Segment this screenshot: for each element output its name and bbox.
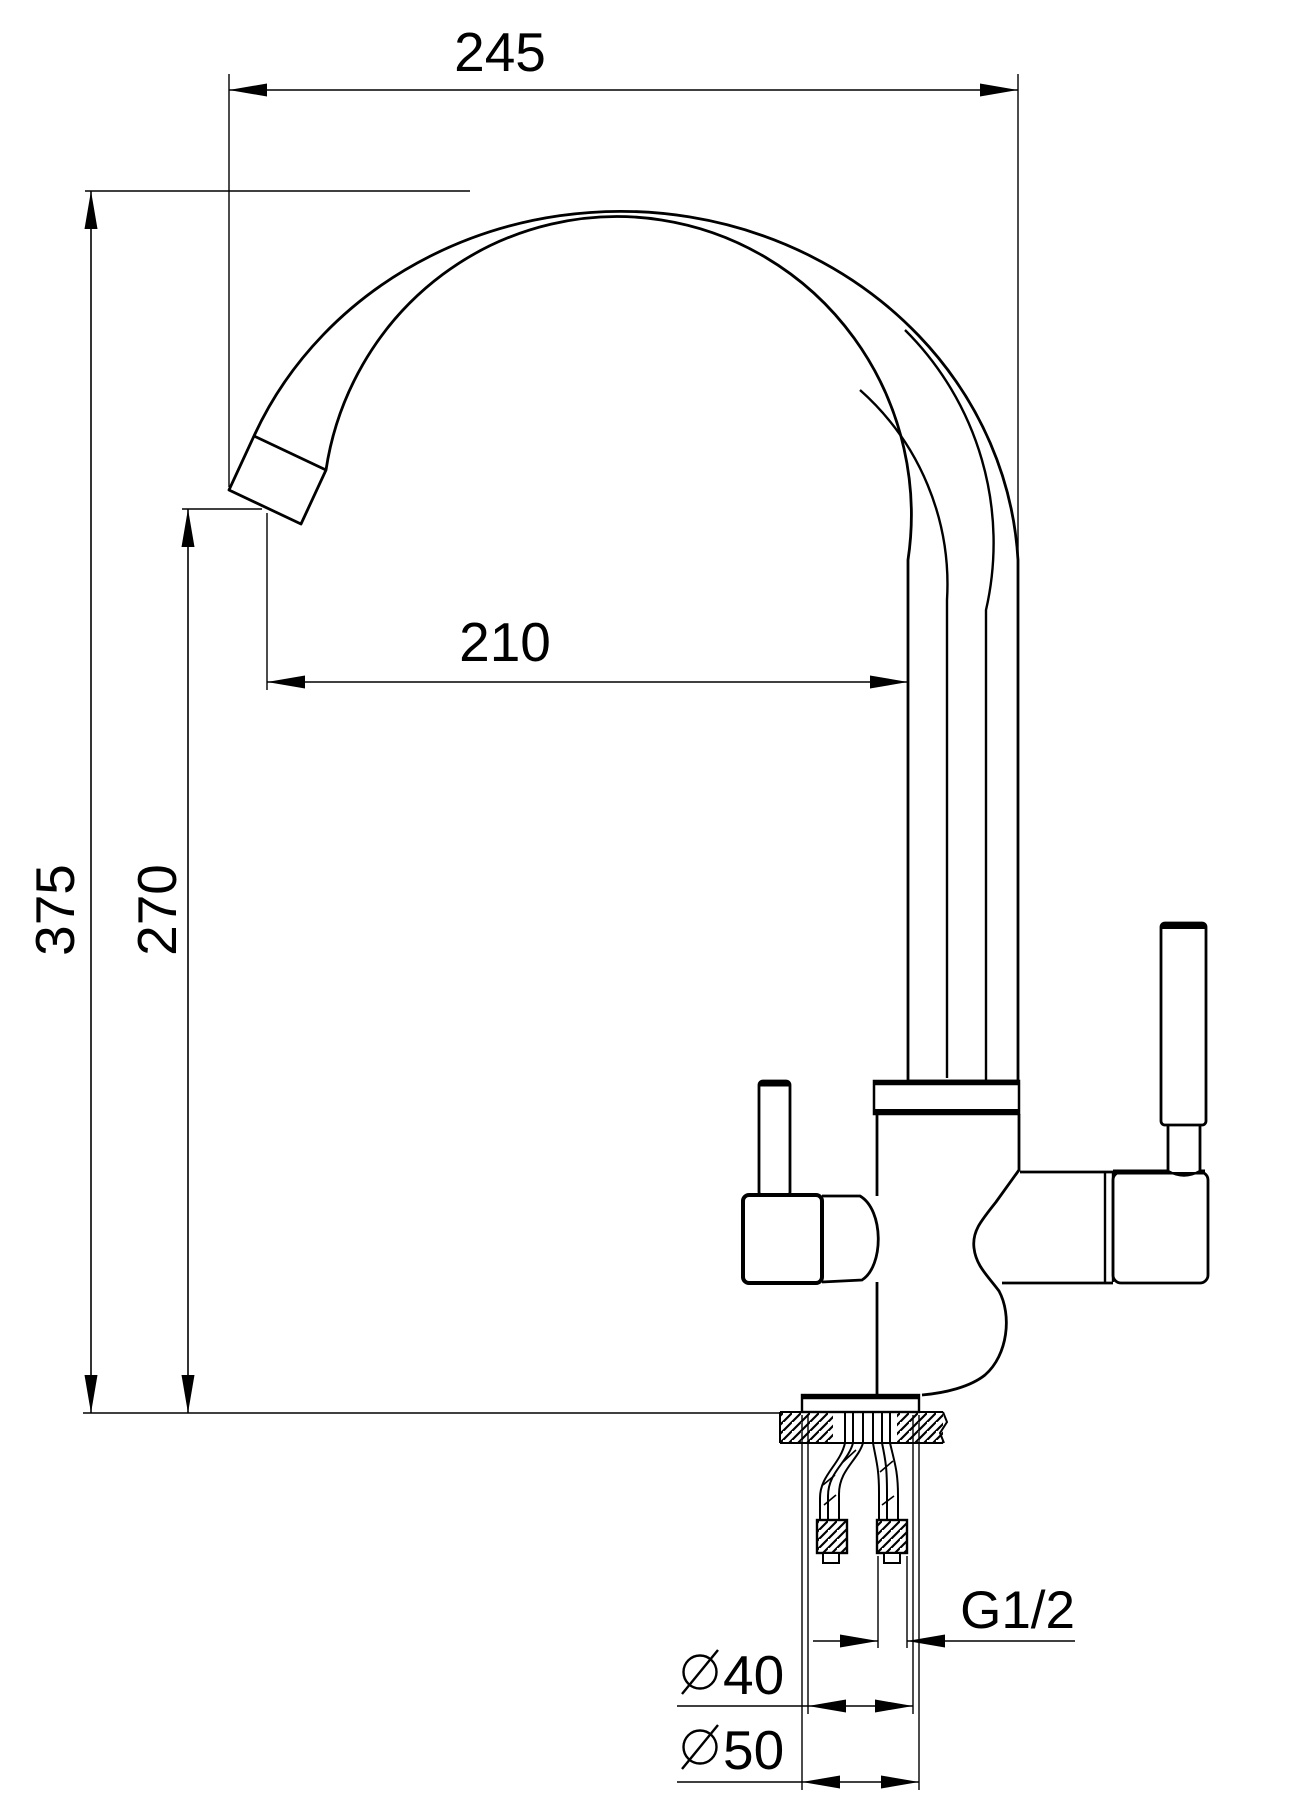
right-boss-cap: [1113, 1172, 1208, 1283]
left-handle-barrel: [822, 1196, 878, 1282]
dim-d40-label: 40: [723, 1644, 784, 1706]
body-right-profile: [922, 1114, 1019, 1395]
dimension-210: 210: [267, 611, 908, 689]
arrow-270-top: [182, 509, 195, 547]
dim-g12-label: G1/2: [960, 1581, 1075, 1640]
counter-hatch-left: [781, 1413, 833, 1442]
arrow-210-right: [870, 676, 908, 689]
right-fitting: [877, 1520, 907, 1553]
hose-fittings: [817, 1520, 907, 1563]
base-plate: [802, 1395, 919, 1412]
arrow-375-bottom: [85, 1375, 98, 1413]
hose-tick: [824, 1495, 836, 1505]
arrow-d40-left: [808, 1700, 846, 1713]
left-handle: [743, 1081, 822, 1283]
arrow-d50-left: [802, 1776, 840, 1789]
right-hose-wall: [882, 1443, 887, 1520]
diameter-symbol-50: [682, 1725, 718, 1769]
spout-tube: [229, 211, 1018, 1081]
right-fitting-stub: [884, 1553, 900, 1563]
counter-hatch-right: [897, 1413, 943, 1442]
dim-d50-label: 50: [723, 1719, 784, 1781]
dimension-d50: 50: [677, 1719, 919, 1789]
arrow-d50-right: [881, 1776, 919, 1789]
right-hose-wall: [890, 1443, 898, 1520]
countertop-section: [780, 1412, 947, 1443]
dim-245-label: 245: [454, 21, 546, 83]
right-lever: [1161, 923, 1206, 1125]
dimension-d40: 40: [677, 1644, 913, 1713]
left-handle-base: [743, 1195, 822, 1283]
arrow-210-left: [267, 676, 305, 689]
shank-lines: [845, 1412, 890, 1443]
dimension-245: 245: [229, 21, 1018, 97]
hose-hatch-ticks: [823, 1450, 894, 1505]
dimension-g12: G1/2: [813, 1581, 1075, 1648]
supply-hoses: [817, 1443, 907, 1563]
left-lever: [759, 1081, 790, 1196]
left-fitting-stub: [823, 1553, 839, 1563]
diameter-symbol-40: [682, 1650, 718, 1694]
left-fitting: [817, 1520, 847, 1553]
arrow-g12-left: [840, 1635, 878, 1648]
dimension-375: 375: [24, 191, 98, 1413]
dimension-270: 270: [126, 509, 195, 1413]
arrow-270-bottom: [182, 1375, 195, 1413]
right-stem-fill: [1168, 1125, 1200, 1172]
arrow-d40-right: [875, 1700, 913, 1713]
arrow-375-top: [85, 191, 98, 229]
faucet-drawing: 245 375 270 210 G1/2 40: [0, 0, 1296, 1800]
dim-375-label: 375: [24, 864, 86, 956]
right-hose-wall: [873, 1443, 879, 1520]
dim-270-label: 270: [126, 864, 188, 956]
arrow-245-right: [980, 84, 1018, 97]
arrow-245-left: [229, 84, 267, 97]
right-handle-boss: [1002, 1172, 1208, 1283]
dim-210-label: 210: [459, 611, 551, 673]
right-handle: [1161, 923, 1206, 1176]
faucet-outline: [229, 211, 1208, 1412]
technical-drawing-canvas: 245 375 270 210 G1/2 40: [0, 0, 1296, 1800]
